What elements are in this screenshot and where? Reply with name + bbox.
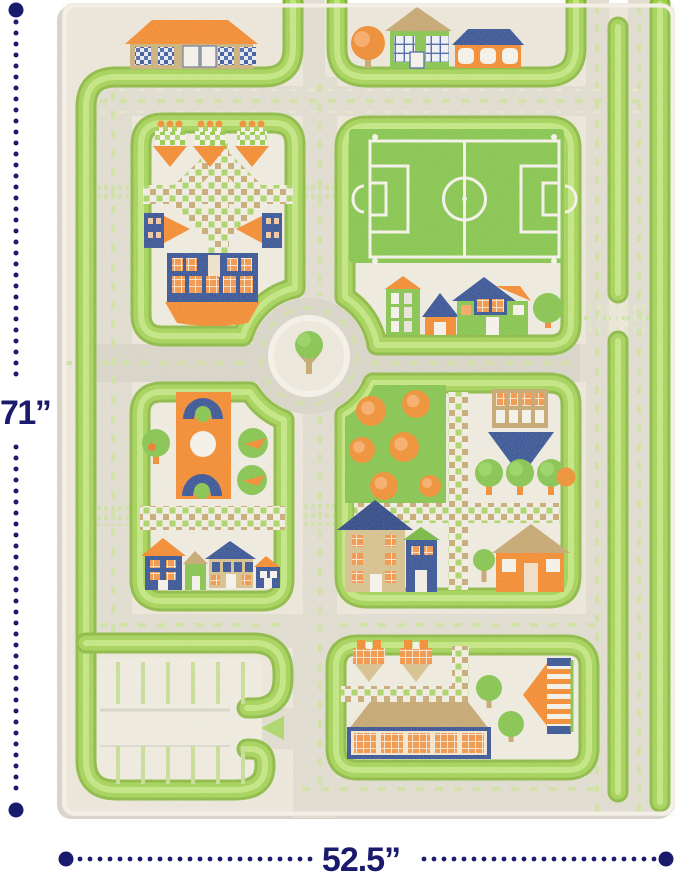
svg-text:52.5”: 52.5” [322,841,400,873]
svg-text:71”: 71” [0,394,50,432]
